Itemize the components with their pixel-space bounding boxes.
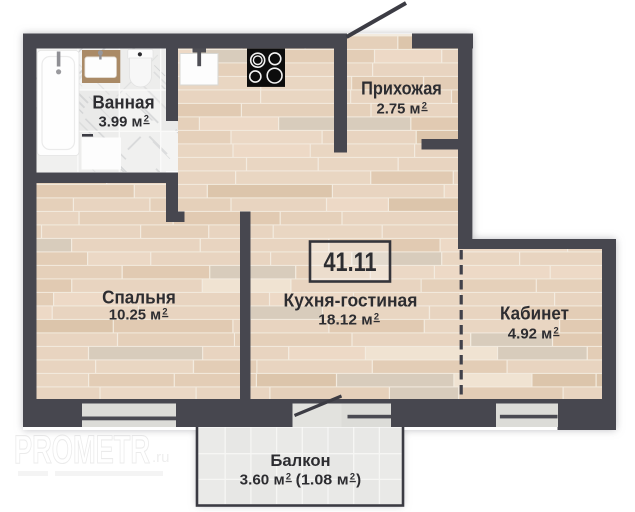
- svg-text:2: 2: [162, 306, 167, 316]
- svg-text:2.75 м: 2.75 м: [377, 101, 421, 118]
- svg-text:PROMETR: PROMETR: [14, 428, 150, 472]
- svg-text:(1.08 м: (1.08 м: [296, 472, 349, 489]
- svg-text:Ванная: Ванная: [92, 92, 154, 113]
- svg-text:2: 2: [554, 325, 559, 335]
- svg-text:): ): [356, 472, 361, 489]
- svg-text:.ru: .ru: [152, 449, 170, 466]
- svg-text:2: 2: [374, 311, 379, 321]
- svg-text:3.99 м: 3.99 м: [99, 114, 143, 131]
- svg-text:Кухня-гостиная: Кухня-гостиная: [284, 290, 418, 311]
- svg-text:Кабинет: Кабинет: [500, 303, 569, 324]
- svg-text:Балкон: Балкон: [270, 452, 330, 470]
- svg-text:4.92 м: 4.92 м: [508, 326, 553, 343]
- svg-text:Спальня: Спальня: [102, 287, 176, 308]
- svg-text:41.11: 41.11: [324, 247, 377, 277]
- svg-text:2: 2: [286, 471, 291, 481]
- svg-text:18.12 м: 18.12 м: [318, 312, 372, 329]
- svg-text:2: 2: [422, 100, 427, 110]
- svg-text:2: 2: [144, 113, 149, 123]
- svg-text:10.25 м: 10.25 м: [109, 307, 161, 324]
- svg-text:Прихожая: Прихожая: [361, 78, 442, 99]
- svg-text:3.60 м: 3.60 м: [240, 472, 285, 489]
- svg-text:2: 2: [350, 471, 355, 481]
